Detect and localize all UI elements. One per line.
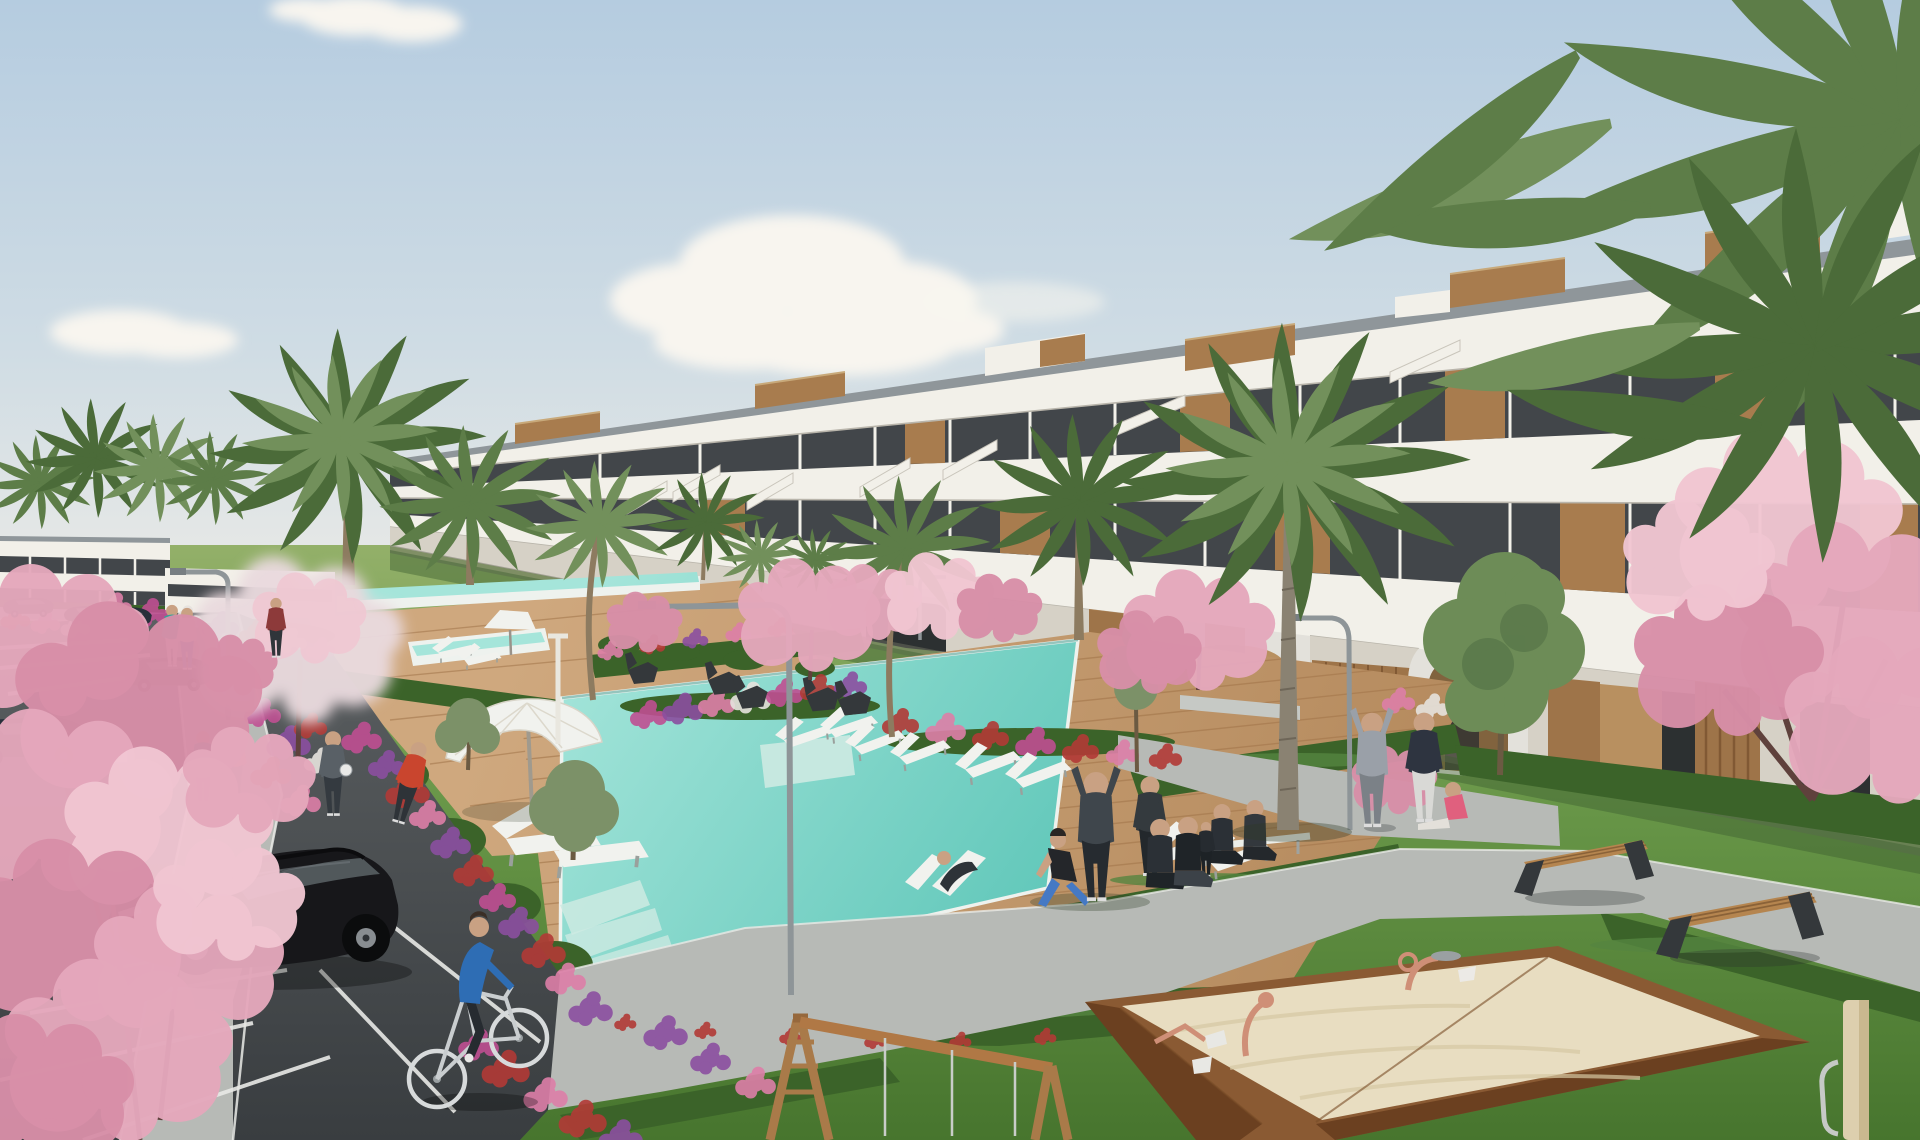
scene-render [0, 0, 1920, 1140]
render-viewport [0, 0, 1920, 1140]
football [340, 764, 352, 776]
